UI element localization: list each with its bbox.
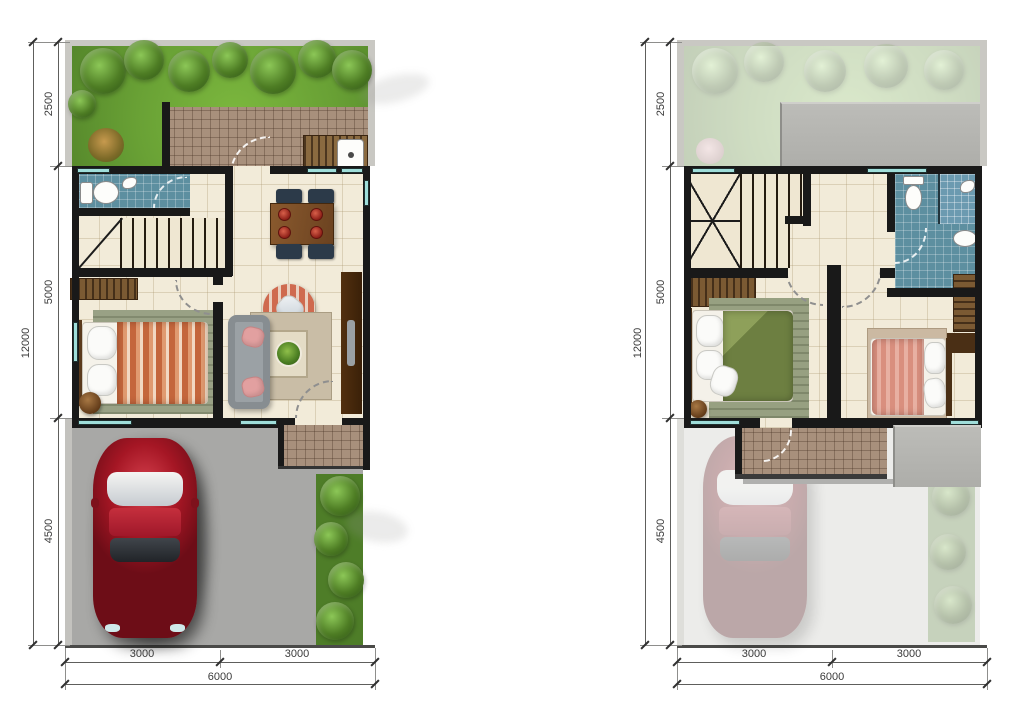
dimension-line xyxy=(33,42,34,645)
tv-cabinet xyxy=(341,272,362,414)
dimension-label: 3000 xyxy=(897,648,921,660)
roof-slab xyxy=(780,102,980,166)
window xyxy=(341,168,363,173)
wall xyxy=(684,268,788,278)
wall xyxy=(735,428,742,478)
window xyxy=(240,420,277,425)
window xyxy=(867,168,927,173)
plate xyxy=(310,226,323,239)
shower-divider xyxy=(938,174,940,224)
dimension-label: 4500 xyxy=(655,519,667,543)
tree-symbol xyxy=(212,42,248,78)
roof-slab xyxy=(893,425,981,487)
tree-symbol xyxy=(250,48,296,94)
tv-symbol xyxy=(347,320,355,366)
window xyxy=(692,168,735,173)
plate xyxy=(310,208,323,221)
tree-symbol xyxy=(924,50,964,90)
dimension-line xyxy=(645,42,646,645)
dimension-label: 3000 xyxy=(742,648,766,660)
car-roof xyxy=(109,508,182,536)
wall xyxy=(880,268,895,278)
blanket xyxy=(872,339,924,415)
tree-symbol xyxy=(864,44,908,88)
toilet-tank xyxy=(903,176,924,185)
planting-strip xyxy=(316,474,363,645)
car-mirror xyxy=(91,498,99,508)
car-windshield xyxy=(107,472,184,506)
extension-line xyxy=(28,645,70,646)
tree-symbol xyxy=(332,50,372,90)
wall xyxy=(225,166,233,276)
faucet xyxy=(348,152,354,158)
dimension-label: 5000 xyxy=(655,280,667,304)
balcony xyxy=(735,428,887,478)
pillow xyxy=(924,342,946,374)
car-light xyxy=(105,624,120,632)
dimension-label: 2500 xyxy=(655,92,667,116)
ground-floor-plan xyxy=(65,40,375,648)
wall xyxy=(213,277,223,285)
side-terrace xyxy=(278,425,363,468)
floor-plan-figure: 2500 5000 4500 12000 3000 3000 6000 xyxy=(0,0,1025,728)
shrub-symbol xyxy=(314,522,348,556)
dimension-label: 5000 xyxy=(43,280,55,304)
dimension-label: 3000 xyxy=(285,648,309,660)
extension-line xyxy=(50,418,72,419)
tree-symbol xyxy=(124,40,164,80)
car-light xyxy=(170,624,185,632)
wall xyxy=(975,166,982,428)
car xyxy=(93,438,197,638)
tree-symbol xyxy=(692,48,738,94)
extension-line xyxy=(662,166,684,167)
dimension-label: 6000 xyxy=(820,671,844,683)
shrub-symbol xyxy=(328,562,364,598)
extension-line xyxy=(640,42,682,43)
dimension-label: 12000 xyxy=(20,328,32,359)
upper-floor-plan xyxy=(677,40,987,648)
dining-chair xyxy=(276,189,302,204)
tree-symbol xyxy=(168,50,210,92)
cushion xyxy=(240,375,266,399)
dimension-line xyxy=(58,42,59,645)
sink-symbol xyxy=(953,230,977,247)
palm-symbol xyxy=(320,476,360,516)
wardrobe xyxy=(70,278,138,300)
toilet-symbol xyxy=(905,185,922,210)
dimension-line xyxy=(65,684,375,685)
dimension-label: 3000 xyxy=(130,648,154,660)
window xyxy=(307,168,337,173)
site-border xyxy=(677,40,684,166)
tree-symbol xyxy=(298,40,336,78)
dining-chair xyxy=(276,244,302,259)
shrub-symbol xyxy=(316,602,354,640)
wall xyxy=(162,102,170,174)
window xyxy=(77,168,110,173)
plate xyxy=(278,226,291,239)
wall xyxy=(887,174,895,232)
tree-symbol xyxy=(744,42,784,82)
site-border xyxy=(677,418,684,645)
wall xyxy=(785,216,811,224)
extension-line xyxy=(640,645,682,646)
window xyxy=(78,420,132,425)
dimension-label: 4500 xyxy=(43,519,55,543)
terrace-edge xyxy=(278,466,363,469)
toilet-tank xyxy=(80,182,93,204)
bed-double xyxy=(870,336,952,418)
dimension-label: 12000 xyxy=(632,328,644,359)
shrub-symbol xyxy=(930,534,966,570)
staircase xyxy=(740,174,810,222)
dining-chair xyxy=(308,189,334,204)
toilet-symbol xyxy=(93,181,119,204)
plate xyxy=(278,208,291,221)
plant-pot xyxy=(277,342,300,365)
wall xyxy=(213,302,223,418)
car-rear-window xyxy=(110,538,181,562)
window xyxy=(73,322,78,362)
dimension-label: 2500 xyxy=(43,92,55,116)
wall xyxy=(278,425,284,468)
extension-line xyxy=(662,418,684,419)
dimension-label: 6000 xyxy=(208,671,232,683)
window xyxy=(364,180,369,206)
tree-symbol xyxy=(804,50,846,92)
sofa xyxy=(228,315,270,409)
wall xyxy=(887,288,982,297)
car-body xyxy=(93,438,197,638)
shrub-symbol xyxy=(68,90,96,118)
side-table xyxy=(689,400,707,418)
wall xyxy=(684,166,691,428)
car-mirror xyxy=(191,498,199,508)
site-border xyxy=(980,40,987,166)
extension-line xyxy=(28,42,70,43)
pillow xyxy=(87,326,117,360)
planting-faded xyxy=(928,474,975,642)
dimension-line xyxy=(670,42,671,645)
wall xyxy=(72,166,79,418)
pillow xyxy=(696,315,724,347)
headboard xyxy=(946,338,952,416)
car-roof xyxy=(719,507,792,535)
extension-line xyxy=(50,166,72,167)
car-rear-window xyxy=(720,537,791,561)
wall xyxy=(72,268,232,277)
tree-symbol xyxy=(80,48,126,94)
shrub-symbol xyxy=(88,128,124,162)
wall xyxy=(363,418,370,470)
stair-landing xyxy=(685,174,740,268)
dimension-line xyxy=(677,684,987,685)
dining-chair xyxy=(308,244,334,259)
wall xyxy=(827,265,841,418)
blanket xyxy=(117,322,208,404)
balcony-slab-edge xyxy=(743,479,895,484)
cushion xyxy=(240,325,266,350)
staircase xyxy=(740,222,790,268)
shrub-symbol xyxy=(934,586,972,624)
window xyxy=(690,420,740,425)
flower-shrub-symbol xyxy=(696,138,724,164)
side-table xyxy=(79,392,101,414)
site-border xyxy=(65,418,72,645)
wall xyxy=(72,208,190,216)
bed-double xyxy=(685,308,795,404)
staircase xyxy=(120,218,225,268)
